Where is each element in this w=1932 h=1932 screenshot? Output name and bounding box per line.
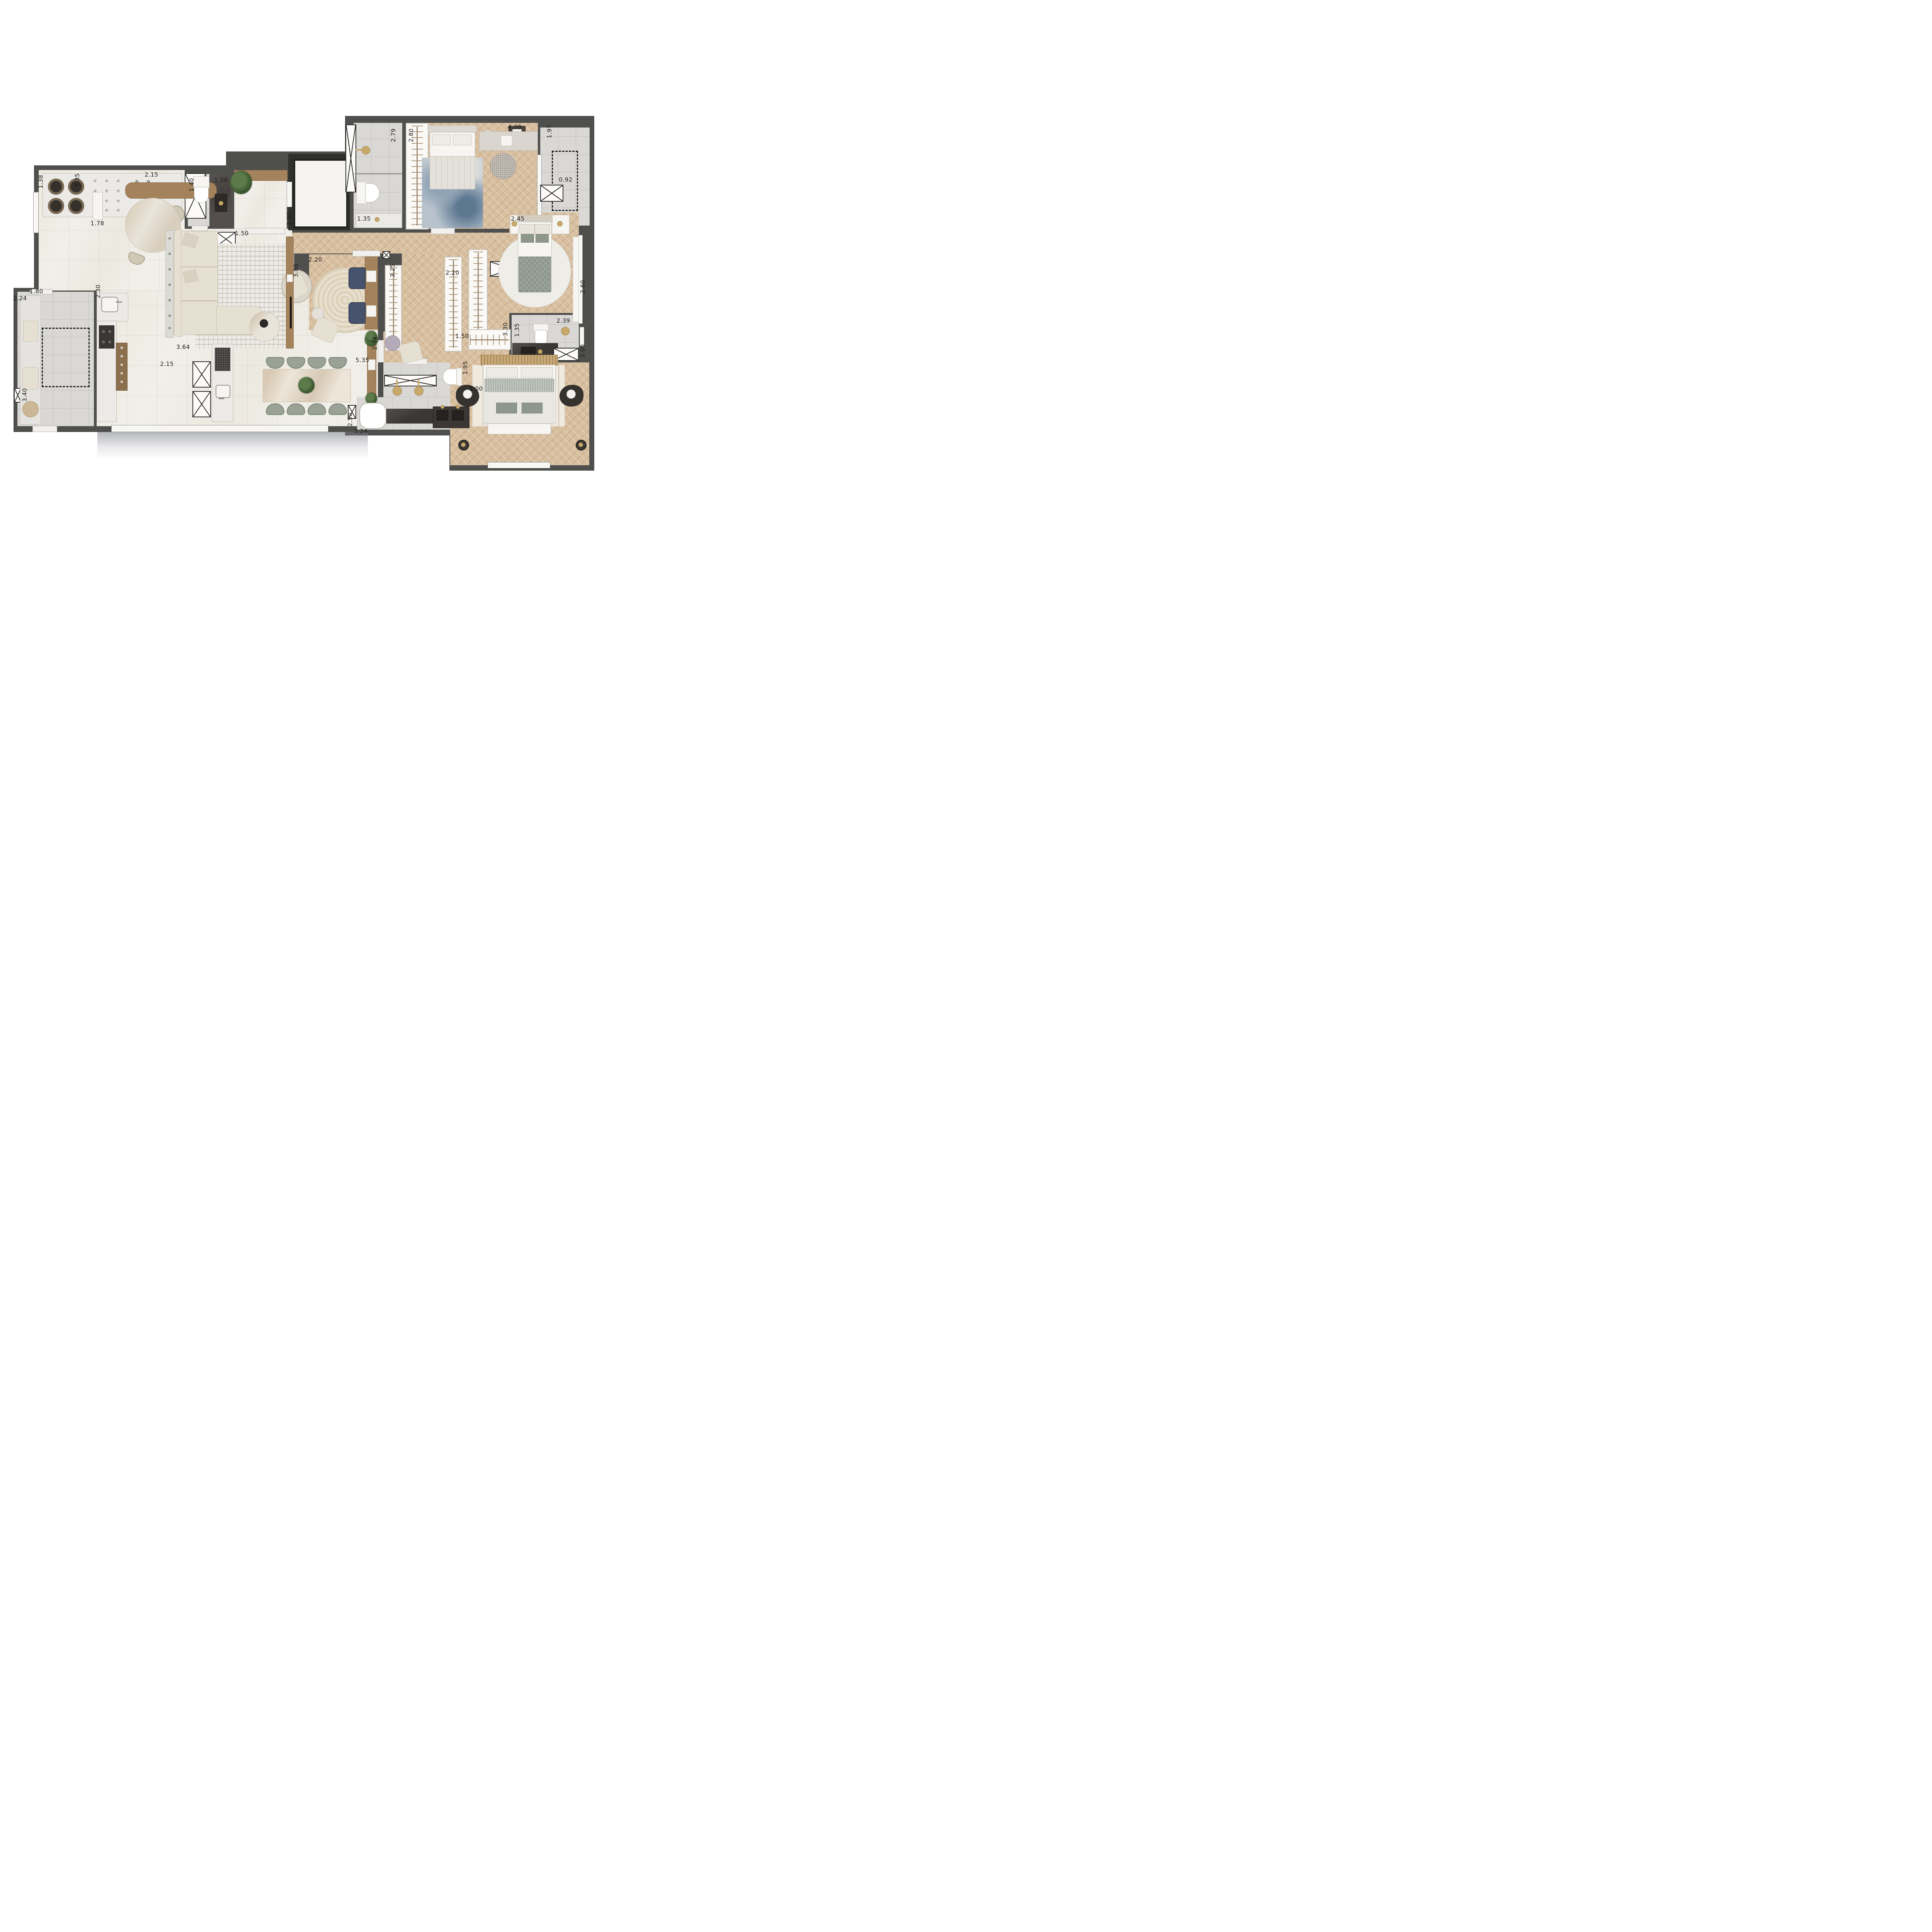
- dimension-label: 2.80: [408, 128, 415, 142]
- dimension-label: 5.35: [355, 357, 369, 364]
- dimension-label: 2.30: [95, 284, 102, 298]
- dimension-label: 3.24: [354, 428, 367, 435]
- dimension-label: 3.30: [502, 322, 509, 336]
- dimension-label: 1.38: [37, 175, 44, 188]
- dimension-layer: 1.385.352.151.781.401.501.501.903.802.79…: [0, 0, 606, 606]
- dimension-label: 2.50: [347, 413, 354, 426]
- dimension-label: 3.80: [293, 264, 299, 277]
- dimension-label: 2.60: [579, 280, 586, 293]
- dimension-label: 2.45: [511, 215, 524, 222]
- dimension-label: 1.50: [214, 177, 228, 184]
- dimension-label: 3.25: [389, 264, 396, 277]
- dimension-label: 1.50: [455, 333, 469, 340]
- dimension-label: 1.97: [546, 124, 553, 138]
- dimension-label: 3.00: [579, 344, 586, 357]
- dimension-label: 2.79: [390, 128, 397, 142]
- dimension-label: 4.70: [508, 124, 521, 131]
- dimension-label: 1.35: [357, 215, 371, 222]
- dimension-label: 3.00: [469, 385, 483, 392]
- floor-plan-canvas: 1.385.352.151.781.401.501.501.903.802.79…: [0, 0, 606, 606]
- dimension-label: 2.20: [446, 269, 459, 276]
- dimension-label: 2.15: [145, 171, 158, 178]
- dimension-label: 2.39: [556, 317, 570, 324]
- dimension-label: 1.90: [286, 212, 293, 225]
- dimension-label: 1.95: [462, 361, 469, 374]
- dimension-label: 1.78: [90, 220, 104, 227]
- dimension-label: 3.64: [176, 344, 190, 350]
- dimension-label: 1.40: [188, 178, 195, 191]
- dimension-label: 1.35: [514, 323, 520, 337]
- dimension-label: 2.24: [13, 295, 27, 302]
- dimension-label: 2.74: [371, 336, 378, 350]
- dimension-label: 3.40: [21, 388, 28, 401]
- dimension-label: 1.80: [29, 288, 43, 295]
- dimension-label: 2.15: [160, 361, 173, 367]
- dimension-label: 0.92: [559, 176, 572, 183]
- dimension-label: 5.35: [74, 173, 81, 187]
- dimension-label: 1.50: [235, 230, 248, 237]
- dimension-label: 2.20: [308, 256, 322, 263]
